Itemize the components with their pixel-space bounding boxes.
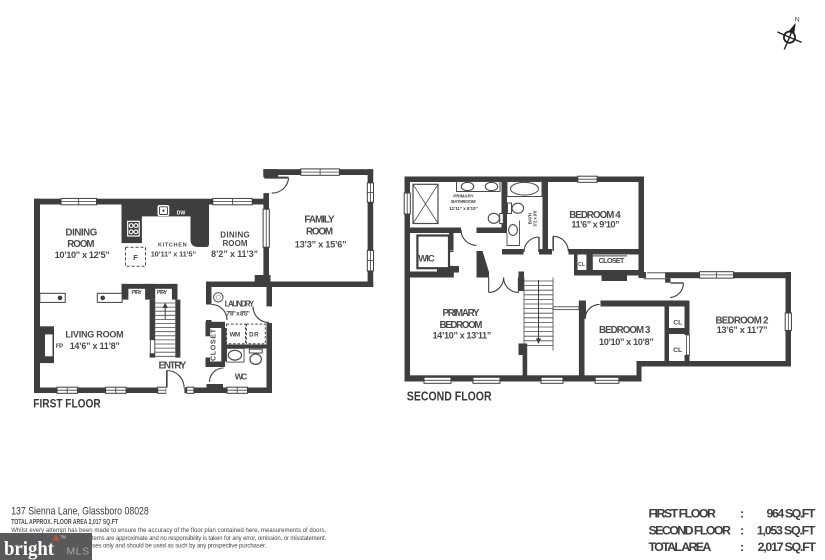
svg-text:BATHROOM: BATHROOM	[451, 199, 476, 204]
svg-text:DINING: DINING	[66, 228, 98, 239]
svg-text:LAUNDRY: LAUNDRY	[225, 300, 255, 309]
svg-text:FP: FP	[56, 344, 63, 350]
svg-text:BATH: BATH	[527, 212, 532, 224]
svg-text:FAMILY: FAMILY	[304, 215, 335, 226]
svg-text:SECOND FLOOR: SECOND FLOOR	[649, 524, 731, 538]
svg-text:ROOM: ROOM	[223, 239, 248, 248]
svg-text:13’6” x 11’7”: 13’6” x 11’7”	[717, 325, 768, 335]
svg-text:CL: CL	[578, 262, 585, 268]
svg-text:PTRY: PTRY	[132, 290, 143, 296]
svg-text:1,053 SQ.FT: 1,053 SQ.FT	[757, 524, 816, 538]
svg-text:11’6” x 9’10”: 11’6” x 9’10”	[571, 220, 619, 230]
svg-text:CLOSET: CLOSET	[599, 256, 625, 265]
svg-text:DW: DW	[177, 211, 186, 217]
svg-text:F: F	[133, 253, 138, 262]
svg-text:FIRST FLOOR: FIRST FLOOR	[33, 397, 100, 411]
svg-text:TM: TM	[60, 535, 67, 540]
svg-text:PTRY: PTRY	[157, 290, 168, 296]
svg-text:10’11” x 11’5”: 10’11” x 11’5”	[151, 250, 197, 259]
svg-text:TOTAL AREA: TOTAL AREA	[649, 540, 712, 554]
svg-text:BEDROOM: BEDROOM	[440, 320, 483, 331]
svg-text:LIVING ROOM: LIVING ROOM	[65, 329, 123, 339]
svg-text:2,017 SQ.FT: 2,017 SQ.FT	[758, 540, 817, 554]
svg-text:bright: bright	[4, 538, 54, 560]
svg-text:10’10” x 12’5”: 10’10” x 12’5”	[55, 250, 110, 260]
svg-text::: :	[740, 507, 744, 521]
svg-text:ROOM: ROOM	[306, 227, 333, 238]
svg-text:WIC: WIC	[418, 254, 435, 265]
svg-text:10’10” x 10’8”: 10’10” x 10’8”	[599, 337, 654, 347]
svg-text:TOTAL APPROX. FLOOR AREA 2,017: TOTAL APPROX. FLOOR AREA 2,017 SQ.FT	[11, 518, 118, 526]
svg-text:WC: WC	[235, 372, 248, 382]
svg-text:WM: WM	[230, 332, 241, 339]
svg-text:13’3” x 15’6”: 13’3” x 15’6”	[295, 240, 347, 250]
svg-text:MLS: MLS	[67, 546, 90, 558]
svg-text:14’6” x 11’8”: 14’6” x 11’8”	[70, 341, 120, 351]
svg-text:CL: CL	[673, 319, 682, 326]
svg-text:ENTRY: ENTRY	[158, 360, 186, 371]
svg-text:ROOM: ROOM	[67, 239, 94, 250]
svg-text:11’11” x 6’10”: 11’11” x 6’10”	[449, 206, 478, 212]
svg-text:14’10” x 13’11”: 14’10” x 13’11”	[433, 331, 492, 341]
svg-text::: :	[740, 540, 744, 554]
svg-text:PRIMARY: PRIMARY	[443, 308, 481, 319]
svg-text:BEDROOM 3: BEDROOM 3	[599, 325, 651, 336]
svg-text:8’2” x 11’3”: 8’2” x 11’3”	[211, 249, 258, 259]
svg-text:DR: DR	[249, 332, 259, 339]
svg-text:N: N	[795, 16, 800, 23]
svg-text:SECOND FLOOR: SECOND FLOOR	[407, 390, 492, 404]
svg-text:964 SQ.FT: 964 SQ.FT	[767, 507, 816, 521]
svg-text::: :	[740, 524, 744, 538]
svg-text:137 Sienna Lane, Glassboro 080: 137 Sienna Lane, Glassboro 08028	[11, 505, 149, 517]
svg-text:5’2 x 9’0: 5’2 x 9’0	[533, 210, 538, 226]
svg-text:KITCHEN: KITCHEN	[158, 243, 187, 249]
svg-text:FIRST FLOOR: FIRST FLOOR	[649, 507, 716, 521]
svg-text:CLOSET: CLOSET	[209, 328, 218, 361]
svg-text:CL: CL	[673, 347, 682, 354]
svg-text:7’8” x 8’5”: 7’8” x 8’5”	[226, 310, 250, 317]
